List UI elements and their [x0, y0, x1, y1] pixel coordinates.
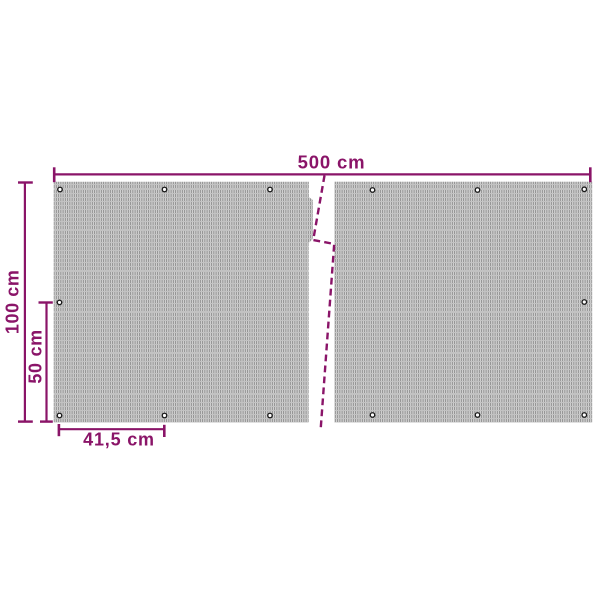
svg-text:41,5 cm: 41,5 cm	[83, 429, 155, 449]
svg-text:100 cm: 100 cm	[3, 269, 23, 334]
svg-text:50 cm: 50 cm	[26, 329, 46, 384]
svg-text:500 cm: 500 cm	[298, 152, 366, 173]
